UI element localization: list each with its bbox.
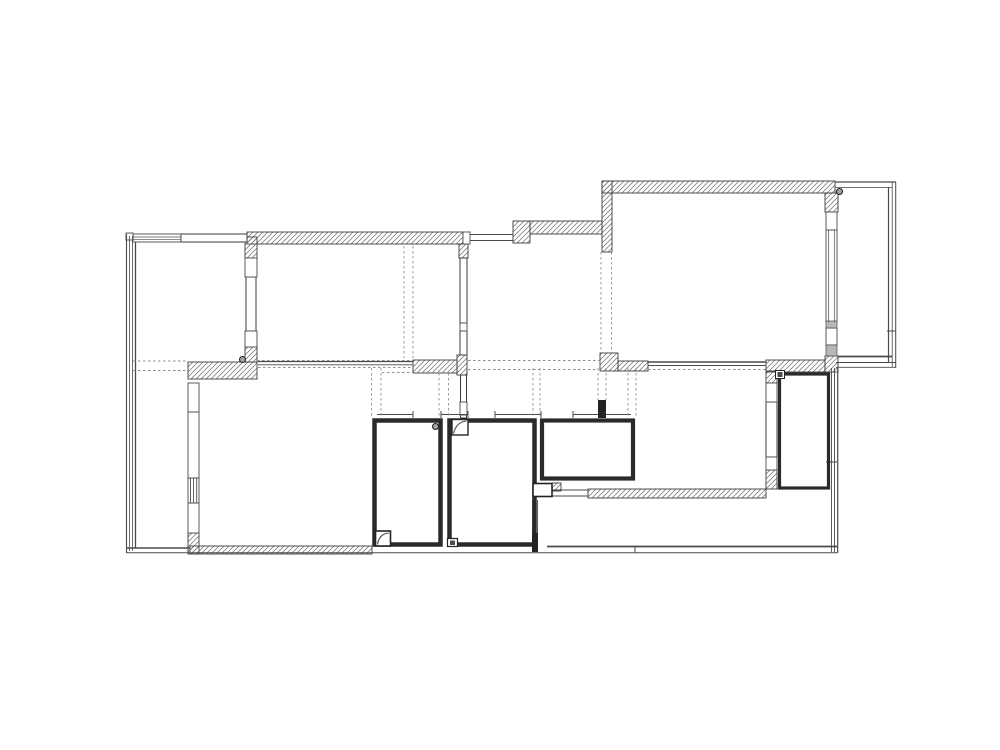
window-segment [766, 457, 777, 470]
window-segment [826, 328, 837, 345]
hatched-wall-segment [413, 360, 457, 373]
wall-stub [532, 533, 538, 552]
fixture-box [452, 420, 468, 436]
window-segment [133, 234, 181, 242]
window-segment [188, 412, 199, 478]
hatched-wall-segment [588, 489, 766, 498]
hatched-wall-segment [513, 221, 530, 243]
hatched-wall-segment [618, 361, 648, 371]
wall-segment [246, 277, 256, 331]
window-segment [460, 402, 467, 415]
window-segment [245, 258, 257, 277]
floor-plan-page [0, 0, 1000, 750]
hatched-wall-segment [600, 353, 618, 371]
hatched-wall-segment [602, 181, 835, 193]
room-outline [450, 421, 535, 545]
window-segment [460, 323, 467, 331]
floor-plan-canvas [0, 0, 1000, 750]
plain-walls-group [181, 234, 777, 457]
window-segment [188, 383, 199, 412]
fixture-fill [778, 372, 783, 377]
window-segment [826, 230, 837, 322]
fixture-box [533, 484, 552, 497]
dashed-lines-group [133, 246, 766, 416]
wall-segment [460, 258, 467, 323]
hatched-wall-segment [766, 470, 777, 489]
hatched-wall-segment [247, 232, 463, 244]
room-outline [542, 421, 633, 479]
window-segment [463, 232, 470, 244]
hatched-wall-segment [245, 347, 257, 362]
wall-stub [598, 400, 606, 418]
window-segment [188, 503, 199, 533]
room-outline [375, 421, 441, 545]
wall-cap [826, 321, 837, 328]
wall-segment [181, 234, 247, 242]
hatched-wall-segment [188, 362, 257, 379]
hatched-wall-segment [825, 193, 838, 212]
hatched-wall-segment [530, 221, 602, 234]
window-segment [826, 212, 837, 230]
point-symbol [433, 424, 439, 430]
hatched-wall-segment [459, 244, 468, 258]
hatched-wall-segment [766, 360, 825, 372]
window-segment [245, 331, 257, 347]
wall-cap [826, 345, 837, 356]
point-symbol [240, 357, 246, 363]
fixture-fill [450, 541, 455, 546]
wall-segment [460, 331, 467, 355]
point-symbol [837, 189, 843, 195]
room-outlines-group [375, 374, 829, 545]
room-outline [780, 374, 829, 488]
window-segment [766, 383, 777, 402]
wall-segment [766, 402, 777, 457]
hatched-wall-segment [457, 355, 467, 375]
